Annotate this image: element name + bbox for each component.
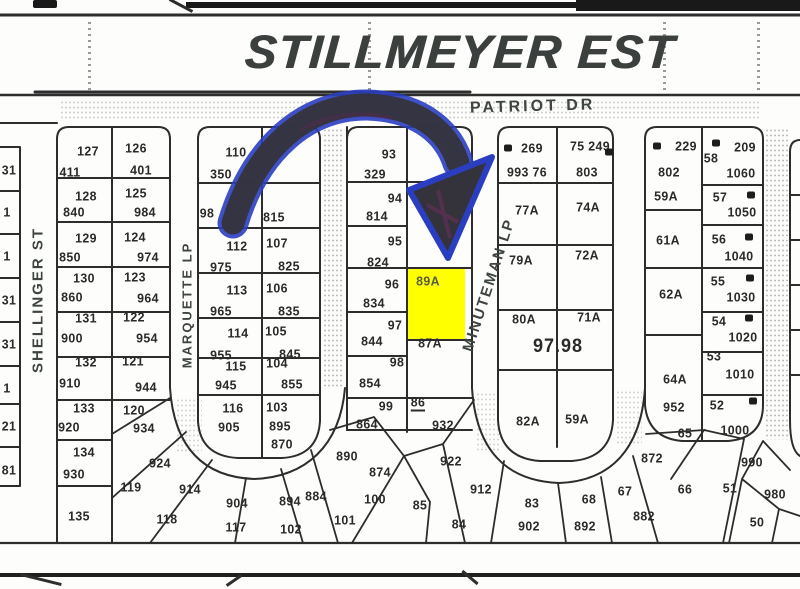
plat-map-page: 3111313112181127411126401128840125984129… (0, 0, 800, 589)
scan-blob (33, 0, 57, 8)
scan-bar (186, 2, 578, 8)
annotation-arrow (0, 0, 800, 589)
scan-bar (576, 0, 800, 11)
